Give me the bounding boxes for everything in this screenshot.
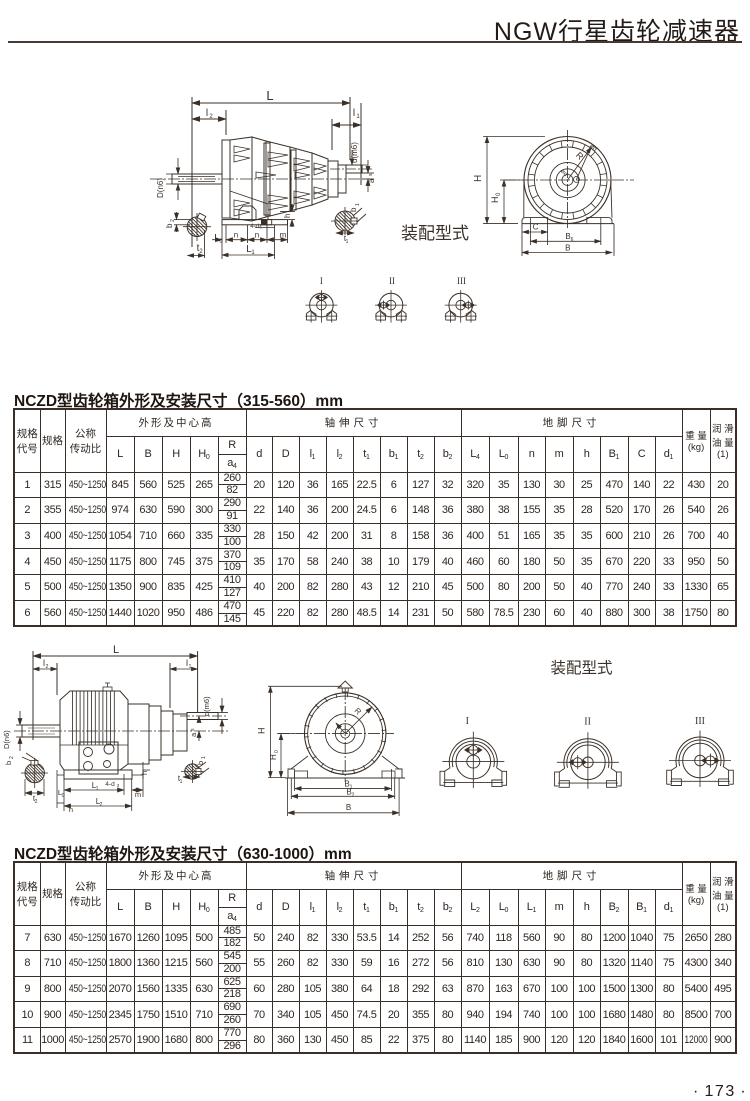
- svg-text:R: R: [353, 706, 364, 717]
- svg-text:d(m6): d(m6): [202, 696, 211, 716]
- svg-text:II: II: [389, 276, 395, 286]
- svg-text:2: 2: [46, 664, 49, 670]
- svg-text:l: l: [206, 108, 208, 119]
- svg-text:2: 2: [199, 249, 203, 255]
- svg-text:1: 1: [346, 239, 349, 245]
- svg-text:6: 6: [571, 237, 574, 243]
- svg-text:2: 2: [170, 219, 176, 222]
- svg-text:L: L: [113, 645, 119, 656]
- svg-text:a: a: [189, 732, 198, 737]
- svg-text:C: C: [533, 223, 539, 232]
- svg-text:2: 2: [35, 799, 38, 805]
- svg-text:0: 0: [496, 192, 502, 196]
- svg-text:b: b: [4, 761, 13, 765]
- svg-text:B: B: [346, 803, 351, 812]
- svg-text:2: 2: [352, 792, 355, 798]
- svg-text:a: a: [367, 178, 376, 183]
- svg-text:0: 0: [219, 239, 223, 245]
- svg-text:R: R: [574, 150, 586, 162]
- svg-text:B: B: [565, 244, 570, 253]
- svg-text:I: I: [320, 276, 323, 286]
- svg-text:H: H: [257, 728, 267, 735]
- svg-text:装配型式: 装配型式: [550, 659, 612, 677]
- svg-text:0: 0: [274, 750, 280, 753]
- svg-text:s: s: [190, 728, 196, 731]
- svg-text:D(n6): D(n6): [2, 730, 11, 749]
- svg-text:h: h: [283, 214, 292, 218]
- svg-text:b: b: [165, 223, 174, 228]
- svg-text:3: 3: [117, 783, 120, 788]
- svg-text:⌀d: ⌀d: [588, 143, 599, 154]
- svg-text:III: III: [457, 276, 466, 286]
- svg-text:m: m: [135, 790, 141, 799]
- svg-text:n: n: [234, 231, 238, 240]
- svg-text:II: II: [584, 717, 591, 728]
- svg-text:III: III: [695, 716, 705, 727]
- svg-text:2: 2: [100, 802, 103, 808]
- svg-text:h: h: [140, 771, 149, 775]
- svg-text:1: 1: [189, 664, 192, 670]
- svg-text:H: H: [473, 175, 484, 182]
- svg-text:1: 1: [355, 203, 361, 206]
- svg-text:1: 1: [201, 756, 207, 759]
- svg-text:s: s: [368, 173, 374, 176]
- svg-text:l: l: [353, 108, 355, 119]
- svg-text:L: L: [266, 88, 273, 103]
- svg-text:0: 0: [62, 793, 65, 799]
- svg-text:1: 1: [356, 114, 360, 120]
- svg-text:m: m: [280, 231, 287, 240]
- svg-text:b: b: [349, 207, 358, 212]
- svg-text:H: H: [269, 754, 278, 760]
- svg-text:H: H: [490, 197, 500, 204]
- svg-text:⌀d: ⌀d: [559, 169, 568, 178]
- svg-text:d(m6): d(m6): [350, 142, 359, 163]
- svg-text:n: n: [255, 231, 259, 240]
- svg-text:n: n: [69, 805, 73, 814]
- svg-text:4-d: 4-d: [105, 781, 115, 788]
- svg-text:2: 2: [9, 756, 15, 759]
- svg-text:1: 1: [96, 786, 99, 792]
- svg-text:I: I: [466, 716, 469, 727]
- svg-text:1: 1: [180, 779, 183, 785]
- svg-text:D(n6): D(n6): [156, 178, 165, 198]
- svg-text:b: b: [196, 761, 205, 765]
- svg-text:装配型式: 装配型式: [401, 224, 469, 243]
